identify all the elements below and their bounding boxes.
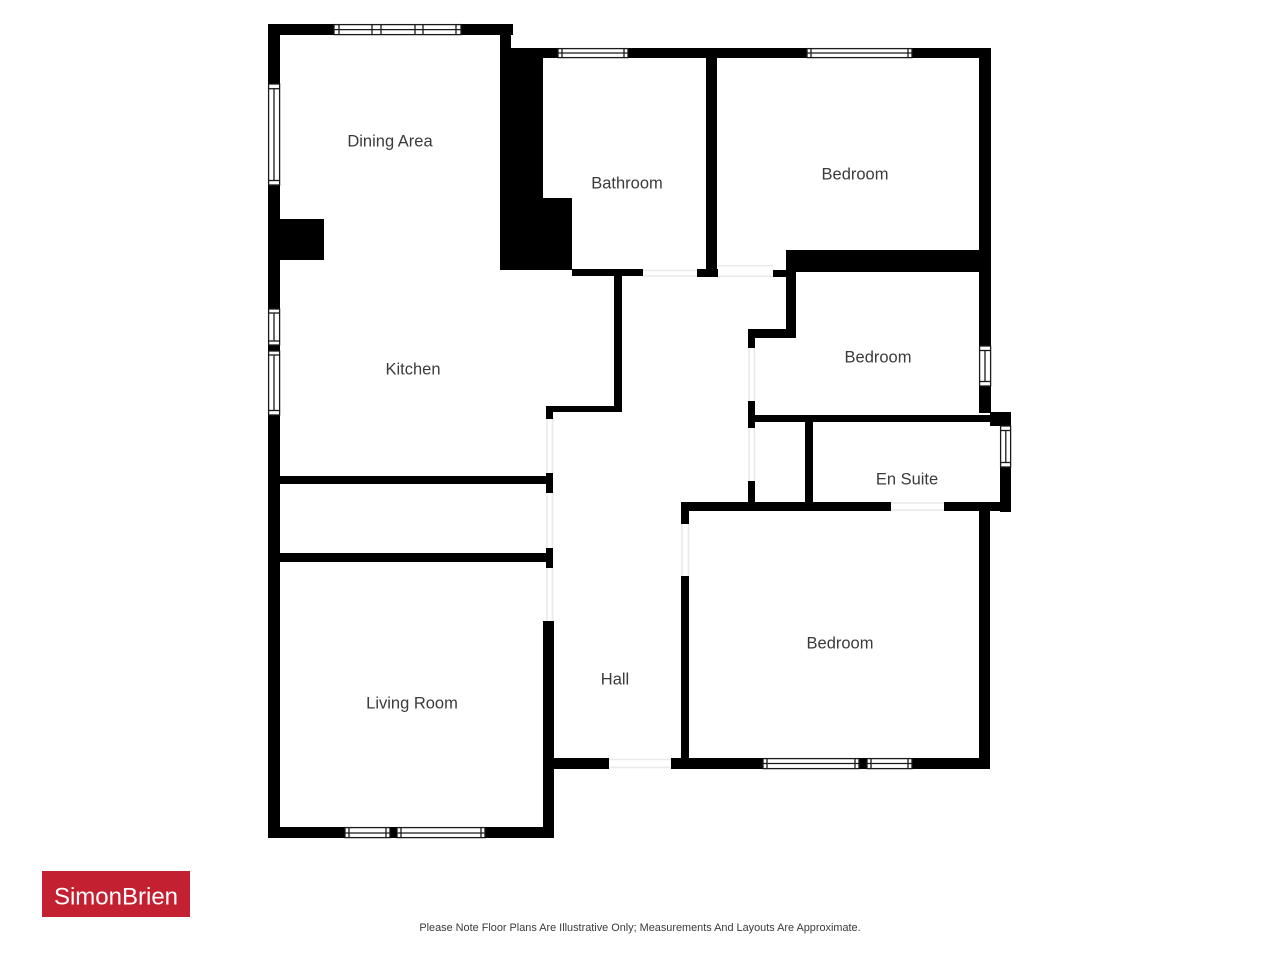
svg-text:Bedroom: Bedroom <box>807 635 874 653</box>
svg-text:Please Note Floor Plans Are Il: Please Note Floor Plans Are Illustrative… <box>419 922 860 934</box>
svg-text:Living Room: Living Room <box>366 695 458 713</box>
svg-text:Hall: Hall <box>601 671 629 689</box>
svg-text:Bedroom: Bedroom <box>822 166 889 184</box>
svg-text:Dining Area: Dining Area <box>347 133 433 151</box>
svg-text:Bedroom: Bedroom <box>845 349 912 367</box>
svg-text:SimonBrien: SimonBrien <box>54 884 178 911</box>
svg-text:Kitchen: Kitchen <box>385 361 440 379</box>
svg-text:En Suite: En Suite <box>876 471 938 489</box>
svg-text:Bathroom: Bathroom <box>591 175 663 193</box>
